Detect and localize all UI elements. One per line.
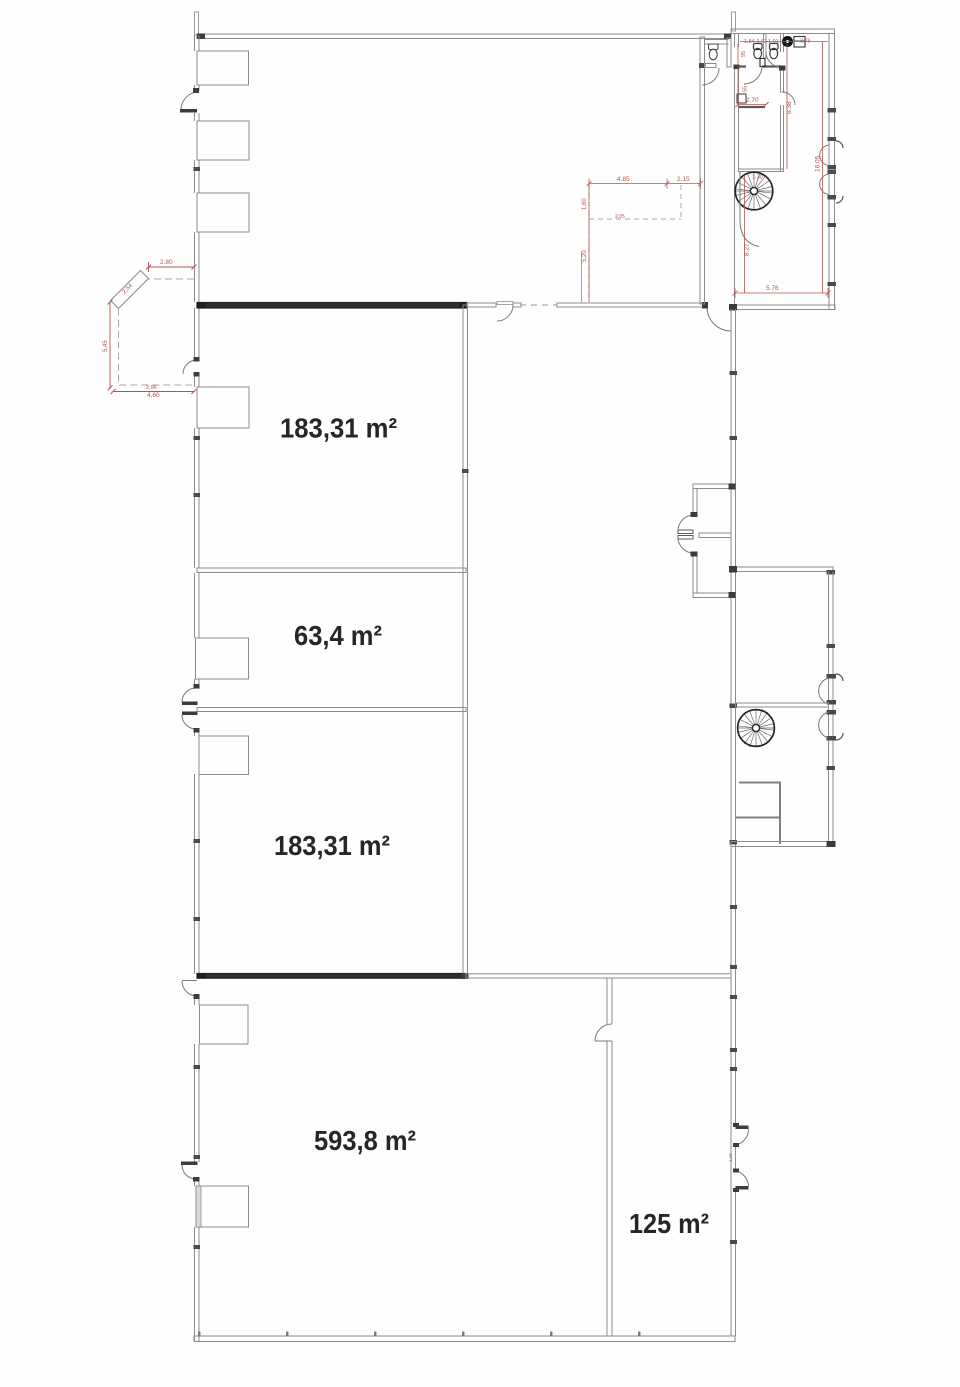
svg-text:55: 55 <box>743 86 749 92</box>
svg-text:4,60: 4,60 <box>147 392 160 399</box>
svg-text:16.05: 16.05 <box>815 155 822 172</box>
svg-text:4.85: 4.85 <box>617 176 630 183</box>
svg-text:5,45: 5,45 <box>103 340 109 352</box>
svg-text:1.84: 1.84 <box>744 39 755 45</box>
svg-text:1.30: 1.30 <box>752 175 763 181</box>
svg-text:183,31 m²: 183,31 m² <box>280 413 397 444</box>
svg-text:8.27: 8.27 <box>744 243 751 256</box>
svg-text:1.01: 1.01 <box>768 39 779 45</box>
svg-text:1,15: 1,15 <box>728 1153 733 1162</box>
svg-text:593,8 m²: 593,8 m² <box>314 1125 416 1156</box>
svg-text:183,31 m²: 183,31 m² <box>274 830 390 861</box>
svg-text:1,60: 1,60 <box>582 198 588 210</box>
svg-text:5,20: 5,20 <box>582 250 588 262</box>
svg-text:1.01: 1.01 <box>757 39 768 45</box>
svg-text:5.76: 5.76 <box>766 285 779 292</box>
svg-text:63,4 m²: 63,4 m² <box>294 620 382 651</box>
svg-text:3.76: 3.76 <box>800 39 811 45</box>
svg-text:95: 95 <box>741 51 747 57</box>
svg-text:2.80: 2.80 <box>160 259 173 266</box>
svg-text:8.38: 8.38 <box>786 101 793 114</box>
svg-text:2.15: 2.15 <box>677 176 690 183</box>
svg-text:2,05: 2,05 <box>615 214 625 220</box>
svg-text:2.70: 2.70 <box>746 97 759 104</box>
svg-text:125 m²: 125 m² <box>629 1208 709 1239</box>
svg-text:2,96: 2,96 <box>146 385 157 391</box>
